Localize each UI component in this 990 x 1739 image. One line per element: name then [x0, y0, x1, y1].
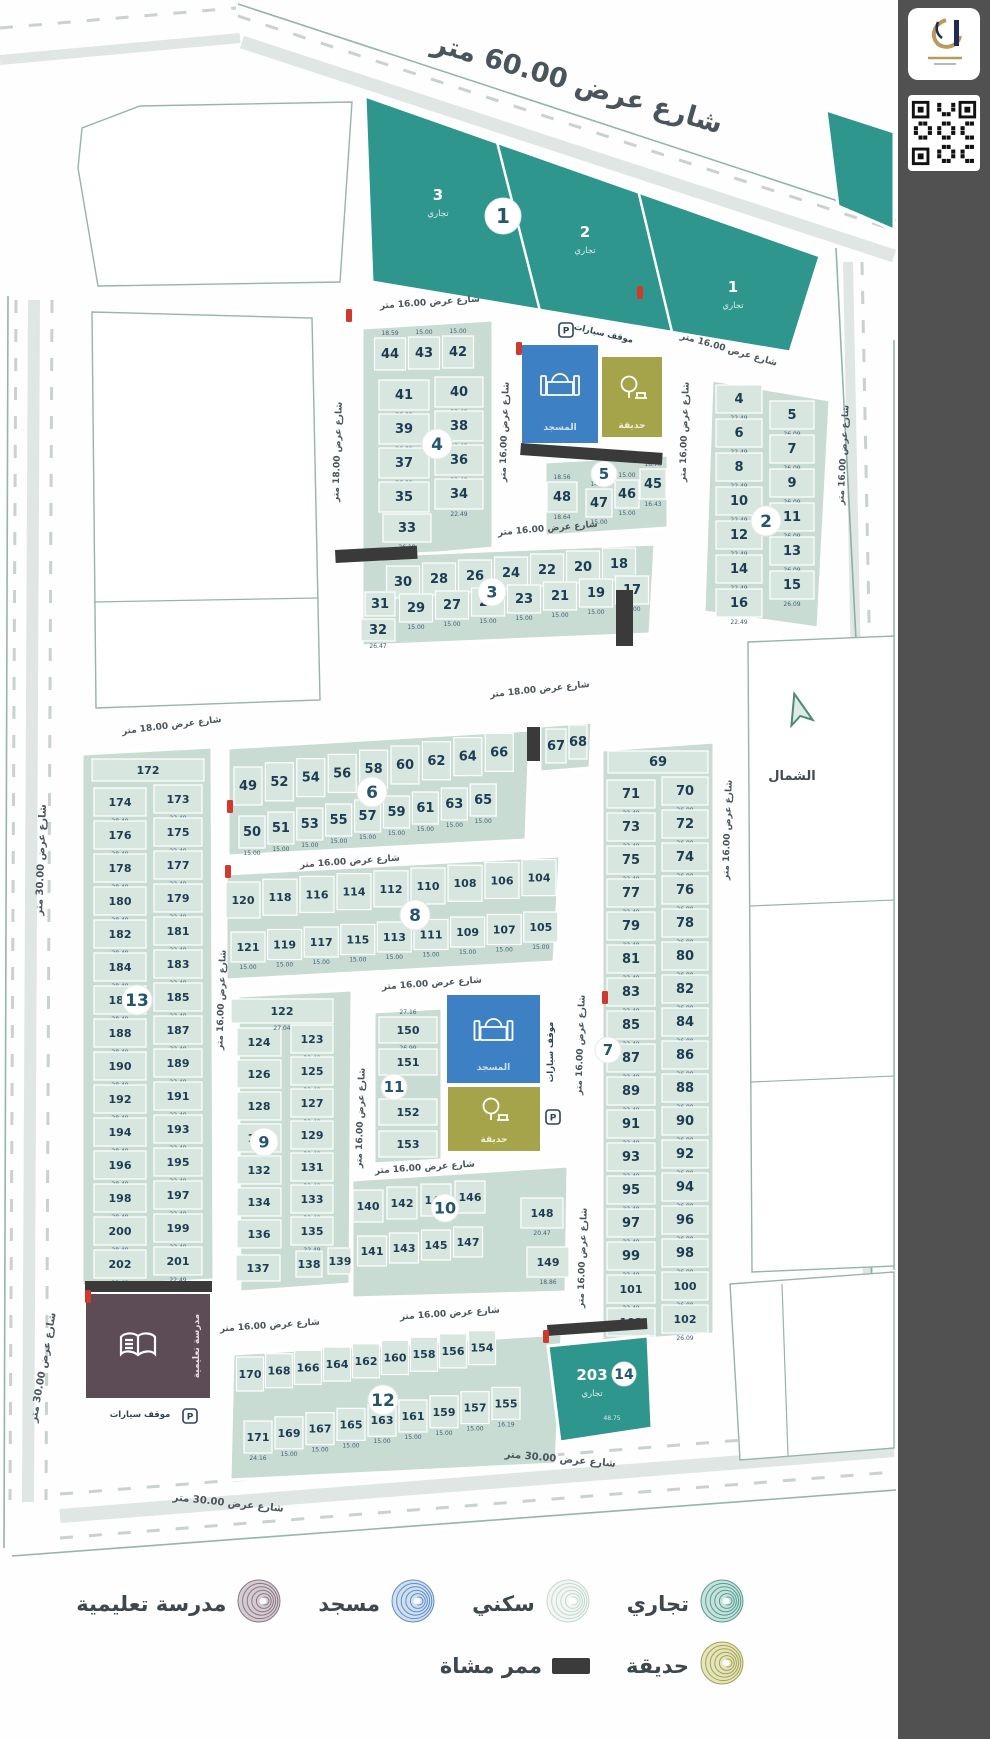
legend-item-حديقة: حديقة	[626, 1640, 745, 1691]
legend-item-مدرسة تعليمية: مدرسة تعليمية	[76, 1578, 282, 1629]
plot-number: 164	[326, 1358, 349, 1371]
garden-label: حديقة	[619, 421, 646, 431]
plot-dimension: 15.00	[313, 959, 330, 966]
block-number: 14	[614, 1367, 634, 1383]
block-14: 203تجاري48.7514	[548, 1336, 652, 1442]
plot-number: 100	[674, 1280, 697, 1293]
plot-dimension: 27.16	[399, 1009, 416, 1016]
plot-number: 10	[730, 494, 748, 509]
mosque-block: المسجد	[446, 994, 541, 1084]
road-median	[28, 300, 34, 1502]
plot-dimension: 15.00	[496, 947, 513, 954]
plot-number: 13	[783, 544, 801, 559]
plot-number: 171	[247, 1431, 270, 1444]
plot-number: 37	[395, 456, 413, 471]
plot-number: 121	[237, 941, 260, 954]
plot-dimension: 16.19	[497, 1421, 514, 1428]
plot-number: 95	[622, 1183, 640, 1198]
plot-number: 99	[622, 1249, 640, 1264]
plot-number: 106	[491, 874, 514, 887]
pedestrian-walkway	[527, 727, 540, 761]
plot-number: 28	[430, 572, 448, 587]
plot-dimension: 48.75	[603, 1415, 620, 1422]
qr-code	[908, 95, 980, 171]
legend-shell-icon	[545, 1578, 591, 1629]
plot-number: 84	[676, 1015, 694, 1030]
block-6: 4952545658606264665015.005115.005315.005…	[228, 730, 530, 857]
plot-number: 198	[109, 1192, 132, 1205]
plot-number: 47	[590, 496, 608, 511]
plot-number: 145	[425, 1239, 448, 1252]
plot-number: 62	[427, 754, 445, 769]
block-number: 10	[434, 1199, 456, 1218]
plot-number: 138	[298, 1258, 321, 1271]
plot-number: 114	[343, 886, 366, 899]
block-13: 17428.4917628.4917828.4918028.4918228.49…	[82, 747, 214, 1287]
plot-dimension: 15.00	[466, 1426, 483, 1433]
plot-dimension: 15.00	[443, 621, 460, 628]
plot-dimension: 15.00	[479, 618, 496, 625]
plot-dimension: 15.00	[373, 1438, 390, 1445]
plot-number: 177	[167, 859, 190, 872]
plot-number: 131	[301, 1161, 324, 1174]
plot-number: 172	[137, 764, 160, 777]
legend-item-مسجد: مسجد	[318, 1578, 436, 1629]
empty-parcel	[730, 1272, 894, 1460]
plot-number: 76	[676, 883, 694, 898]
pedestrian-walkway	[85, 1281, 212, 1292]
plot-number: 43	[415, 346, 433, 361]
plot-number: 160	[384, 1352, 407, 1365]
plot-number: 115	[346, 934, 369, 947]
school-block: مدرسة تعليمية	[85, 1293, 211, 1399]
plot-number: 154	[471, 1342, 494, 1355]
plot-number: 19	[587, 586, 605, 601]
block-11: 15026.9927.1615115215311	[374, 1008, 442, 1164]
plot-number: 22	[538, 563, 556, 578]
plot-number: 126	[248, 1068, 271, 1081]
legend-label: سكني	[472, 1592, 535, 1616]
plot-number: 88	[676, 1081, 694, 1096]
plot-number: 9	[787, 476, 796, 491]
plot-number: 64	[459, 750, 477, 765]
plot-dimension: 15.00	[446, 822, 463, 829]
plot-number: 117	[310, 936, 333, 949]
plot-number: 51	[272, 821, 290, 836]
legend-item-ممر مشاة: ممر مشاة	[440, 1654, 590, 1678]
plot-dimension: 15.00	[618, 472, 635, 479]
plot-number: 49	[239, 779, 257, 794]
plot-dimension: 18.59	[381, 330, 398, 337]
plot-dimension: 15.00	[280, 1451, 297, 1458]
plot-number: 82	[676, 982, 694, 997]
plot-number: 156	[442, 1345, 465, 1358]
plot-number: 155	[495, 1397, 518, 1410]
legend-label: ممر مشاة	[440, 1654, 542, 1678]
plot-number: 50	[243, 825, 261, 840]
plot-number: 118	[269, 891, 292, 904]
block-number: 4	[431, 435, 443, 455]
mosque-label: المسجد	[477, 1063, 510, 1073]
plot-number: 12	[730, 528, 748, 543]
mosque-block: المسجد	[521, 344, 599, 444]
plot-number: 153	[397, 1138, 420, 1151]
plot-number: 67	[547, 739, 565, 754]
plot-number: 105	[529, 921, 552, 934]
plot-number: 98	[676, 1246, 694, 1261]
plot-dimension: 15.00	[475, 818, 492, 825]
plot-dimension: 26.09	[783, 601, 800, 608]
plot-number: 202	[109, 1258, 132, 1271]
plot-number: 150	[397, 1024, 420, 1037]
listing-page: { "page":{"bg":"#ffffff"}, "sidebar":{ "…	[0, 0, 990, 1739]
plot-number: 44	[381, 347, 399, 362]
plot-number: 27	[443, 598, 461, 613]
commercial-plot-type: تجاري	[722, 301, 744, 311]
plot-number: 141	[361, 1245, 384, 1258]
plot-number: 41	[395, 388, 413, 403]
plot-number: 29	[407, 601, 425, 616]
plot-dimension: 15.00	[388, 830, 405, 837]
plot-number: 148	[531, 1207, 554, 1220]
plot-dimension: 15.00	[618, 510, 635, 517]
plot-number: 104	[528, 872, 551, 885]
plot-number: 174	[109, 796, 132, 809]
plot-number: 58	[365, 762, 383, 777]
plot-dimension: 15.00	[359, 834, 376, 841]
plot-dimension: 15.00	[415, 329, 432, 336]
legend-item-تجاري: تجاري	[627, 1578, 745, 1629]
plot-number: 8	[734, 460, 743, 475]
plot-number: 71	[622, 787, 640, 802]
red-marker	[227, 800, 233, 813]
plot-number: 146	[459, 1191, 482, 1204]
plot-number: 187	[167, 1024, 190, 1037]
company-logo	[908, 8, 980, 80]
garden-block: حديقة	[447, 1086, 541, 1152]
block-number: 8	[409, 906, 421, 926]
plot-number: 53	[301, 817, 319, 832]
plot-number: 66	[490, 745, 508, 760]
legend-row-2: حديقةممر مشاة	[440, 1640, 745, 1691]
parking-label: موقف سيارات	[110, 1410, 171, 1420]
plot-dimension: 26.47	[369, 643, 386, 650]
plot-number: 143	[393, 1242, 416, 1255]
legend-shell-icon	[390, 1578, 436, 1629]
plot-number: 180	[109, 895, 132, 908]
plot-number: 107	[493, 924, 516, 937]
red-marker	[602, 991, 608, 1004]
plot-number: 139	[329, 1255, 352, 1268]
subdivision-map: 3تجاري2تجاري1تجاري14418.594315.004215.00…	[0, 0, 898, 1739]
legend-item-سكني: سكني	[472, 1578, 591, 1629]
plot-number: 61	[416, 801, 434, 816]
legend-label: مدرسة تعليمية	[76, 1592, 226, 1616]
plot-number: 16	[730, 596, 748, 611]
plot-number: 152	[397, 1106, 420, 1119]
plot-number: 39	[395, 422, 413, 437]
plot-number: 56	[333, 766, 351, 781]
red-marker	[85, 1290, 91, 1303]
plot-dimension: 26.09	[676, 1335, 693, 1342]
block-number: 7	[603, 1041, 613, 1059]
commercial-plot-type: تجاري	[574, 246, 596, 256]
red-marker	[516, 342, 522, 355]
plot-number: 94	[676, 1180, 694, 1195]
plot-number: 165	[340, 1418, 363, 1431]
plot-number: 129	[301, 1129, 324, 1142]
plot-number: 83	[622, 985, 640, 1000]
block-10: 14014214414614114314514714820.4714918.86…	[352, 1166, 569, 1298]
plot-number: 59	[387, 805, 405, 820]
plot-number: 197	[167, 1189, 190, 1202]
plot-dimension: 15.00	[272, 846, 289, 853]
legend-walkway-swatch	[552, 1658, 590, 1674]
plot-number: 33	[398, 521, 416, 536]
plot-dimension: 15.00	[422, 952, 439, 959]
plot-number: 159	[433, 1406, 456, 1419]
commercial-plot-number: 3	[433, 186, 443, 204]
plot-number: 184	[109, 961, 132, 974]
plot-number: 96	[676, 1213, 694, 1228]
plot-dimension: 15.00	[435, 1430, 452, 1437]
plot-number: 55	[330, 813, 348, 828]
plot-number: 72	[676, 817, 694, 832]
plot-number: 182	[109, 928, 132, 941]
pedestrian-walkway	[616, 590, 633, 646]
plot-dimension: 22.49	[450, 511, 467, 518]
block-number: 1	[496, 204, 510, 228]
plot-number: 11	[783, 510, 801, 525]
plot-dimension: 15.00	[459, 949, 476, 956]
block-number: 13	[125, 991, 149, 1011]
parking-label: موقف سيارات	[546, 1022, 556, 1083]
plot-number: 183	[167, 958, 190, 971]
plot-dimension: 15.00	[404, 1434, 421, 1441]
plot-number: 81	[622, 952, 640, 967]
plot-number: 48	[553, 490, 571, 505]
plot-number: 109	[456, 926, 479, 939]
plot-number: 70	[676, 784, 694, 799]
plot-number: 101	[620, 1283, 643, 1296]
empty-parcel	[78, 102, 352, 286]
plot-dimension: 15.00	[243, 850, 260, 857]
plot-number: 173	[167, 793, 190, 806]
plot-number: 194	[109, 1126, 132, 1139]
legend-label: تجاري	[627, 1592, 689, 1616]
plot-number: 4	[734, 392, 743, 407]
plot-dimension: 15.00	[386, 954, 403, 961]
block-number: 9	[258, 1133, 269, 1152]
empty-parcel	[92, 312, 320, 708]
plot-number: 52	[270, 775, 288, 790]
plot-number: 189	[167, 1057, 190, 1070]
company-logo-emblem	[908, 8, 980, 80]
plot-number: 35	[395, 490, 413, 505]
plot-number: 93	[622, 1150, 640, 1165]
plot-dimension: 15.00	[532, 944, 549, 951]
plot-number: 34	[450, 487, 468, 502]
plot-number: 18	[610, 557, 628, 572]
plot-dimension: 15.00	[515, 615, 532, 622]
block-number: 11	[384, 1078, 405, 1096]
red-marker	[225, 865, 231, 878]
plot-number: 199	[167, 1222, 190, 1235]
plot-number: 162	[355, 1355, 378, 1368]
plot-number: 45	[644, 477, 662, 492]
plot-number: 201	[167, 1255, 190, 1268]
plot-number: 5	[787, 408, 796, 423]
commercial-plot-type: تجاري	[427, 209, 449, 219]
block-number: 12	[371, 1391, 395, 1411]
plot-number: 57	[359, 809, 377, 824]
plot-number: 63	[445, 797, 463, 812]
plot-number: 195	[167, 1156, 190, 1169]
legend-label: مسجد	[318, 1592, 380, 1616]
block-8: 12011811611411211010810610412115.0011915…	[226, 856, 560, 980]
plot-number: 65	[474, 793, 492, 808]
plot-number: 193	[167, 1123, 190, 1136]
plot-number: 26	[466, 569, 484, 584]
plot-number: 127	[301, 1097, 324, 1110]
commercial-plot-number: 1	[728, 278, 738, 296]
plot-number: 122	[271, 1005, 294, 1018]
plot-number: 21	[551, 589, 569, 604]
plot-number: 161	[402, 1410, 425, 1423]
plot-number: 15	[783, 578, 801, 593]
plot-number: 128	[248, 1100, 271, 1113]
plot-number: 87	[622, 1051, 640, 1066]
red-marker	[637, 286, 643, 299]
plot-number: 73	[622, 820, 640, 835]
legend-shell-icon	[699, 1578, 745, 1629]
plot-number: 163	[371, 1414, 394, 1427]
plot-number: 123	[301, 1033, 324, 1046]
plot-number: 78	[676, 916, 694, 931]
plot-number: 125	[301, 1065, 324, 1078]
plot-number: 191	[167, 1090, 190, 1103]
plot-number: 54	[302, 771, 320, 786]
block-number: 6	[366, 783, 378, 803]
plot-dimension: 15.00	[407, 624, 424, 631]
plot-number: 113	[383, 931, 406, 944]
plot-number: 110	[417, 880, 440, 893]
plot-number: 23	[515, 592, 533, 607]
plot-number: 80	[676, 949, 694, 964]
plot-number: 90	[676, 1114, 694, 1129]
plot-dimension: 15.00	[449, 328, 466, 335]
plot-number: 79	[622, 919, 640, 934]
block-number: 2	[760, 512, 772, 532]
svg-text:P: P	[187, 1413, 194, 1423]
legend-shell-icon	[236, 1578, 282, 1629]
plot-dimension: 15.00	[311, 1447, 328, 1454]
plot-number: 185	[167, 991, 190, 1004]
plot-number: 111	[420, 929, 443, 942]
block-4: 4418.594315.004215.004126.093926.093726.…	[362, 320, 493, 560]
plot-number: 40	[450, 385, 468, 400]
block-9: 12412612813013213413612322.4912522.49127…	[231, 990, 352, 1292]
plot-dimension: 16.43	[644, 501, 661, 508]
plot-number: 149	[537, 1256, 560, 1269]
plot-number: 91	[622, 1117, 640, 1132]
garden-label: حديقة	[481, 1135, 508, 1145]
plot-dimension: 15.00	[349, 957, 366, 964]
plot-number: 136	[248, 1228, 271, 1241]
empty-parcel	[748, 636, 894, 1272]
plot-number: 38	[450, 419, 468, 434]
plot-number: 120	[232, 894, 255, 907]
plot-number: 157	[464, 1402, 487, 1415]
red-marker	[346, 309, 352, 322]
plot-number: 200	[109, 1225, 132, 1238]
legend-row-1: تجاريسكنيمسجدمدرسة تعليمية	[76, 1578, 745, 1629]
plot-number: 166	[297, 1361, 320, 1374]
plot-number: 69	[649, 755, 667, 770]
listing-sidebar: الدمام - حي الصدفةأرض للبيع472 م²1.1 ملي…	[898, 0, 990, 1739]
plot-number: 151	[397, 1056, 420, 1069]
plot-number: 36	[450, 453, 468, 468]
plot-number: 169	[278, 1427, 301, 1440]
plot-number: 135	[301, 1225, 324, 1238]
north-label: الشمال	[768, 769, 815, 784]
plot-number: 179	[167, 892, 190, 905]
plot-number: 30	[394, 575, 412, 590]
plot-number: 176	[109, 829, 132, 842]
plot-number: 188	[109, 1027, 132, 1040]
plot-number: 112	[380, 883, 403, 896]
plot-dimension: 18.56	[553, 474, 570, 481]
legend-label: حديقة	[626, 1654, 689, 1678]
plot-number: 85	[622, 1018, 640, 1033]
svg-text:P: P	[563, 327, 570, 337]
plot-number: 137	[247, 1262, 270, 1275]
plot-number: 42	[449, 345, 467, 360]
qr-pattern	[908, 95, 980, 171]
plot-dimension: 27.04	[273, 1025, 290, 1032]
plot-dimension: 24.16	[249, 1455, 266, 1462]
plot-number: 7	[787, 442, 796, 457]
plot-dimension: 18.86	[539, 1279, 556, 1286]
plot-number: 24	[502, 566, 520, 581]
plot-number: 60	[396, 758, 414, 773]
plot-number: 178	[109, 862, 132, 875]
plot-number: 116	[306, 888, 329, 901]
plot-number: 133	[301, 1193, 324, 1206]
plot-number: 147	[457, 1236, 480, 1249]
plot-number: 124	[248, 1036, 271, 1049]
plot-dimension: 15.00	[417, 826, 434, 833]
plot-number: 102	[674, 1313, 697, 1326]
plot-number: 190	[109, 1060, 132, 1073]
plot-number: 6	[734, 426, 743, 441]
plot-number: 170	[239, 1368, 262, 1381]
plot-number: 97	[622, 1216, 640, 1231]
plot-dimension: 15.00	[301, 842, 318, 849]
mosque-label: المسجد	[543, 423, 576, 433]
plot-number: 89	[622, 1084, 640, 1099]
plot-dimension: 15.00	[330, 838, 347, 845]
plot-number: 119	[273, 939, 296, 952]
red-marker	[543, 1330, 549, 1343]
plot-number: 75	[622, 853, 640, 868]
plot-number: 134	[248, 1196, 271, 1209]
plot-dimension: 18.64	[553, 514, 570, 521]
plot-number: 46	[618, 487, 636, 502]
block-2: 422.49622.49822.491022.491222.491422.491…	[704, 380, 830, 628]
plot-dimension: 15.00	[551, 612, 568, 619]
plot-dimension: 15.00	[342, 1442, 359, 1449]
